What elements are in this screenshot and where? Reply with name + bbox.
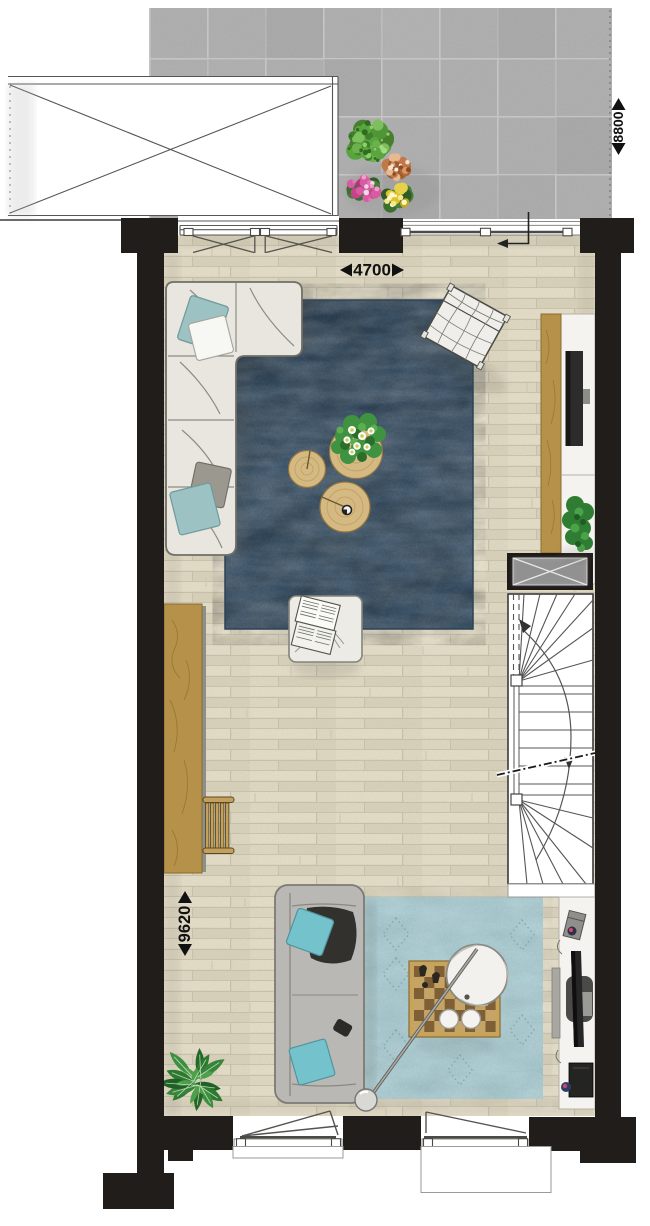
svg-text:9620: 9620 [176, 906, 194, 943]
svg-text:4700: 4700 [353, 261, 391, 280]
svg-text:8800: 8800 [610, 111, 626, 142]
